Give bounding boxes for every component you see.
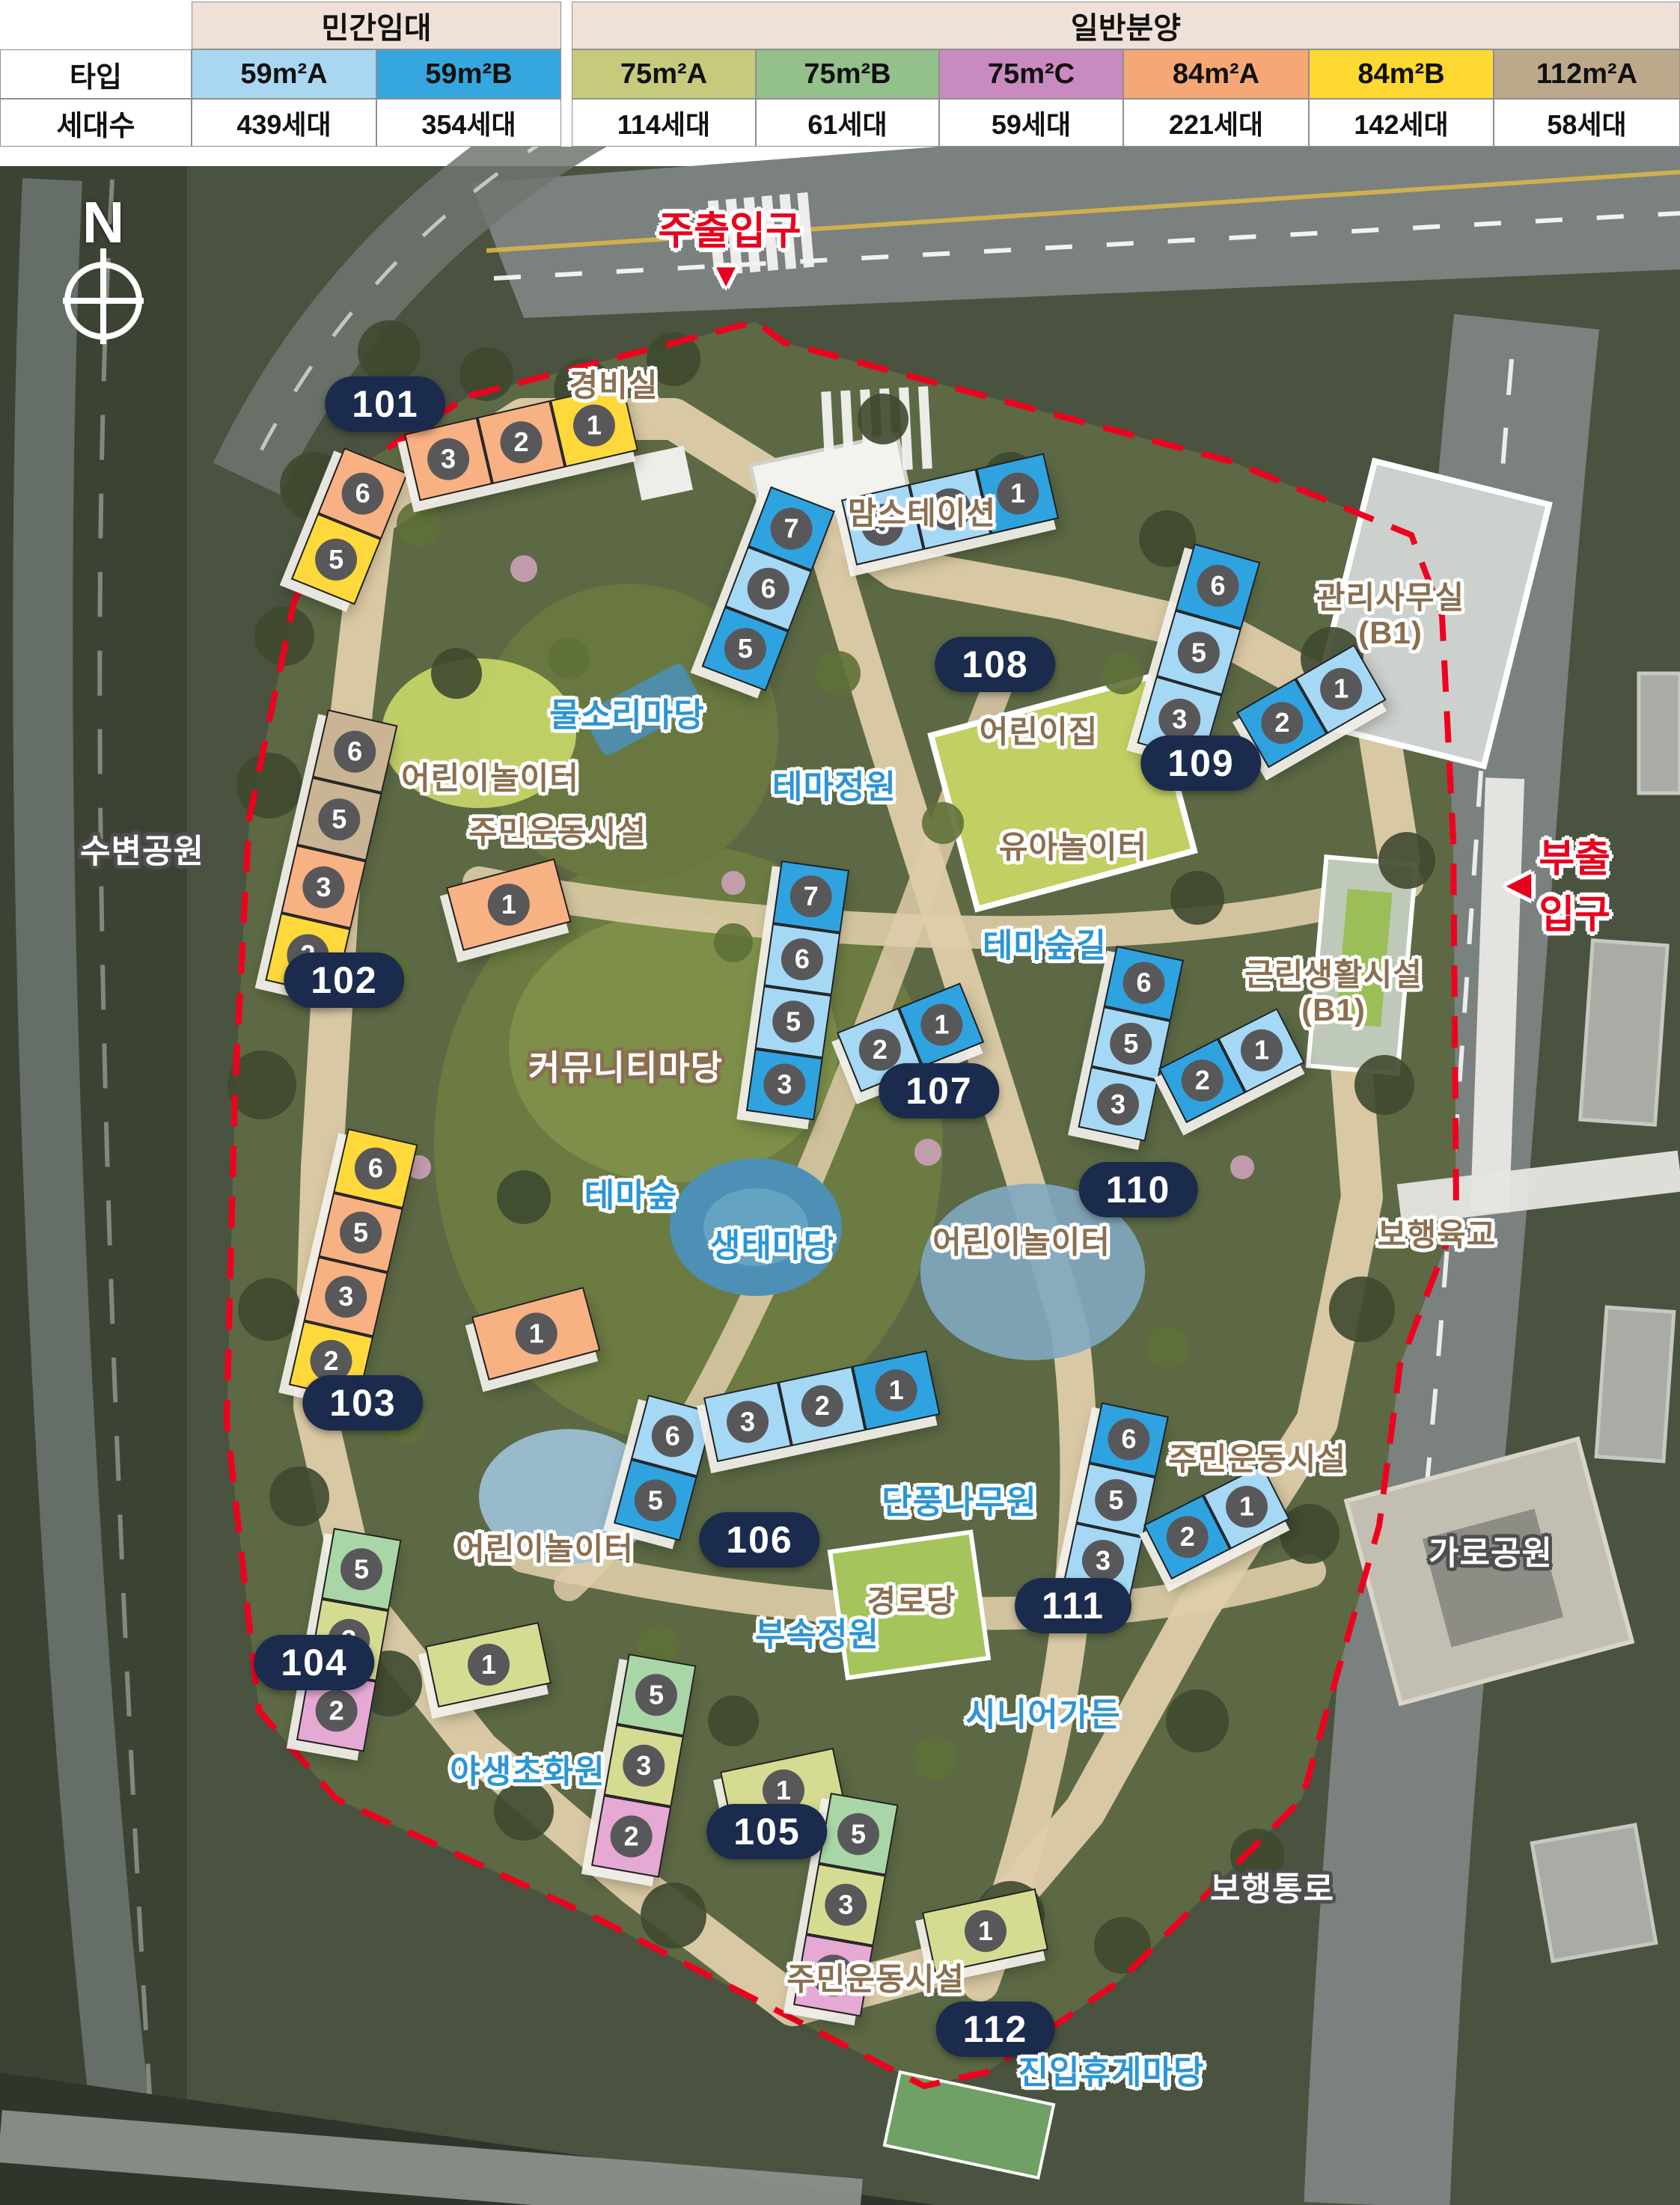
- building-badge-103: 103: [302, 1375, 423, 1431]
- map-label-27-blue: 진입휴게마당: [1018, 2054, 1205, 2091]
- unit-number-circle: 1: [573, 405, 615, 447]
- map-label-23-blue: 시니어가든: [965, 1696, 1120, 1733]
- unit-legend-table: 민간임대일반분양타입59m²A59m²B75m²A75m²B75m²C84m²A…: [0, 1, 1680, 147]
- map-label-2-facility: 관리사무실 (B1): [1316, 580, 1464, 650]
- legend-group-0: 민간임대: [192, 1, 561, 49]
- unit-number-circle: 6: [781, 938, 823, 980]
- unit-number-circle: 6: [1197, 565, 1238, 607]
- entrance-label: 부출입구: [1539, 827, 1622, 939]
- unit-number-circle: 6: [748, 568, 789, 610]
- legend-corner: [0, 1, 192, 49]
- unit-number-circle: 3: [825, 1884, 867, 1926]
- map-label-20-whitegray: 가로공원: [1429, 1535, 1553, 1571]
- legend-count-3: 61세대: [756, 99, 939, 147]
- legend-row-header-type: 타입: [0, 49, 192, 99]
- building-106-part-2: 321: [703, 1351, 941, 1462]
- building-109-part-1: 653: [1137, 543, 1260, 762]
- entrance-0: 주출입구▼: [658, 200, 801, 295]
- building-badge-110: 110: [1079, 1162, 1198, 1217]
- site-plan-page: N 민간임대일반분양타입59m²A59m²B75m²A75m²B75m²C84m…: [0, 0, 1680, 2205]
- legend-count-2: 114세대: [572, 99, 756, 147]
- unit-number-circle: 3: [763, 1063, 805, 1105]
- unit-number-circle: 1: [1241, 1030, 1283, 1071]
- legend-count-1: 354세대: [376, 99, 561, 147]
- legend-count-0: 439세대: [192, 99, 376, 147]
- unit-number-circle: 6: [355, 1148, 397, 1190]
- building-106-unit-2-type-59A: 2: [778, 1366, 866, 1446]
- legend-type-4: 75m²C: [939, 49, 1123, 99]
- building-105-unit-2-type-75C: 2: [591, 1795, 671, 1878]
- unit-number-circle: 2: [1181, 1059, 1223, 1101]
- building-badge-112: 112: [936, 2001, 1055, 2057]
- map-label-17-blue: 단풍나무원: [882, 1484, 1036, 1520]
- unit-number-circle: 3: [623, 1745, 665, 1787]
- legend-count-4: 59세대: [939, 99, 1123, 147]
- legend-type-0: 59m²A: [192, 49, 376, 99]
- building-badge-105: 105: [706, 1804, 827, 1859]
- map-label-10-blue: 테마숲길: [983, 927, 1107, 964]
- compass: N: [58, 196, 148, 346]
- unit-number-circle: 2: [611, 1815, 653, 1857]
- building-110-part-1: 653: [1078, 946, 1184, 1142]
- unit-number-circle: 5: [635, 1674, 677, 1716]
- building-badge-106: 106: [699, 1512, 819, 1568]
- unit-number-circle: 6: [652, 1415, 694, 1457]
- unit-number-circle: 5: [318, 798, 360, 840]
- building-badge-109: 109: [1140, 735, 1261, 791]
- building-103-part-2: 1: [471, 1287, 600, 1380]
- unit-number-circle: 7: [790, 875, 832, 917]
- building-108-part-1: 765: [702, 486, 835, 691]
- unit-number-circle: 5: [1178, 631, 1220, 673]
- unit-number-circle: 2: [801, 1385, 843, 1427]
- legend-type-5: 84m²A: [1123, 49, 1309, 99]
- legend-type-1: 59m²B: [376, 49, 561, 99]
- map-label-12-whitebrown: 커뮤니티마당: [528, 1049, 723, 1088]
- building-112-unit-3-type-75A: 3: [806, 1864, 886, 1947]
- unit-number-circle: 1: [997, 473, 1039, 515]
- unit-number-circle: 1: [876, 1369, 917, 1411]
- unit-number-circle: 6: [1108, 1419, 1149, 1461]
- building-106-unit-1-type-59B: 1: [852, 1351, 941, 1431]
- entrance-arrow-icon: ◀: [1506, 865, 1532, 903]
- unit-number-circle: 6: [342, 472, 384, 514]
- unit-number-circle: 5: [1110, 1023, 1152, 1065]
- unit-number-circle: 6: [334, 730, 376, 772]
- unit-number-circle: 3: [1082, 1540, 1124, 1582]
- building-101-part-1: 65: [291, 447, 408, 605]
- unit-number-circle: 2: [316, 1689, 358, 1731]
- legend-type-3: 75m²B: [756, 49, 939, 99]
- entrance-label: 주출입구: [658, 200, 801, 256]
- unit-number-circle: 3: [1097, 1083, 1139, 1125]
- unit-number-circle: 6: [1122, 962, 1164, 1004]
- unit-number-circle: 3: [1158, 698, 1200, 740]
- unit-number-circle: 1: [1320, 668, 1362, 710]
- building-107-unit-5-type-59A: 5: [755, 985, 832, 1057]
- map-label-1-facility: 맘스테이션: [848, 495, 996, 530]
- unit-number-circle: 5: [724, 628, 766, 670]
- building-112-unit-5-type-75B: 5: [818, 1793, 898, 1876]
- legend-type-7: 112m²A: [1494, 49, 1680, 99]
- unit-number-circle: 5: [340, 1211, 382, 1253]
- map-label-18-facility: 주민운동시설: [1168, 1441, 1346, 1476]
- unit-number-circle: 1: [468, 1644, 510, 1686]
- unit-number-circle: 2: [1261, 702, 1303, 744]
- unit-number-circle: 2: [501, 421, 543, 463]
- unit-number-circle: 1: [488, 884, 530, 926]
- building-102-unit-1-type-84A: 1: [446, 858, 572, 951]
- unit-number-circle: 5: [635, 1479, 676, 1521]
- building-badge-104: 104: [254, 1635, 374, 1690]
- building-111-part-1: 653: [1063, 1402, 1169, 1598]
- unit-number-circle: 3: [325, 1276, 367, 1318]
- map-label-8-facility: 유아놀이터: [999, 829, 1147, 864]
- building-109-part-2: 21: [1236, 644, 1387, 768]
- building-badge-101: 101: [325, 376, 445, 432]
- building-107-unit-6-type-59A: 6: [763, 923, 840, 995]
- building-106-part-1: 65: [614, 1395, 715, 1541]
- map-label-25-facility: 주민운동시설: [786, 1961, 965, 1996]
- map-label-15-facility: 어린이놀이터: [932, 1224, 1111, 1259]
- building-104-unit-1-type-75A: 1: [425, 1622, 552, 1707]
- legend-count-6: 142세대: [1309, 99, 1494, 147]
- map-label-21-facility: 어린이놀이터: [456, 1531, 634, 1566]
- building-badge-108: 108: [935, 637, 1055, 692]
- entrance-1: ◀부출입구: [1506, 827, 1622, 939]
- building-104-part-2: 1: [425, 1622, 552, 1707]
- map-label-26-whitegray: 보행통로: [1210, 1871, 1334, 1907]
- legend-type-6: 84m²B: [1309, 49, 1494, 99]
- building-badge-102: 102: [284, 952, 404, 1008]
- building-105-unit-3-type-75A: 3: [604, 1725, 684, 1808]
- map-label-24-blue: 야생초화원: [450, 1753, 605, 1790]
- map-label-9-whitegray: 수변공원: [80, 833, 204, 869]
- building-badge-107: 107: [879, 1063, 999, 1119]
- building-103-unit-1-type-84A: 1: [471, 1287, 600, 1380]
- map-label-13-blue: 테마숲: [584, 1177, 677, 1214]
- map-label-7-blue: 테마정원: [772, 768, 896, 805]
- map-label-0-facility: 경비실: [569, 367, 659, 403]
- map-label-16-facility: 보행육교: [1378, 1217, 1497, 1252]
- building-107-part-1: 7653: [746, 860, 849, 1121]
- building-111-part-2: 21: [1143, 1464, 1290, 1579]
- legend-type-2: 75m²A: [572, 49, 756, 99]
- map-label-3-facility: 어린이집: [980, 714, 1099, 749]
- legend-row-header-households: 세대수: [0, 99, 192, 147]
- unit-number-circle: 2: [858, 1029, 900, 1071]
- building-105-unit-5-type-75B: 5: [616, 1654, 696, 1737]
- unit-number-circle: 1: [920, 1004, 962, 1046]
- map-label-11-facility: 근린생활시설 (B1): [1244, 957, 1423, 1027]
- building-103-part-1: 6532: [289, 1128, 418, 1401]
- map-label-19-facility: 경로당: [867, 1583, 956, 1618]
- map-overlay: 6532165321653215321532165321765321765321…: [0, 0, 1680, 2205]
- compass-icon: [58, 248, 148, 346]
- legend-count-5: 221세대: [1123, 99, 1309, 147]
- building-102-part-2: 1: [446, 858, 572, 951]
- unit-number-circle: 5: [837, 1813, 879, 1855]
- unit-number-circle: 5: [340, 1548, 382, 1590]
- unit-number-circle: 2: [1166, 1516, 1208, 1558]
- unit-number-circle: 3: [427, 438, 469, 480]
- map-label-6-facility: 주민운동시설: [468, 814, 647, 849]
- building-107-unit-7-type-59B: 7: [772, 860, 849, 932]
- unit-number-circle: 5: [1095, 1479, 1137, 1521]
- building-badge-111: 111: [1015, 1578, 1131, 1633]
- unit-number-circle: 3: [302, 866, 344, 908]
- unit-number-circle: 1: [965, 1910, 1007, 1952]
- unit-number-circle: 5: [772, 1001, 814, 1043]
- unit-number-circle: 5: [315, 538, 357, 580]
- map-label-22-blue: 부속정원: [755, 1616, 879, 1653]
- building-105-part-1: 532: [591, 1654, 697, 1878]
- unit-number-circle: 1: [515, 1312, 557, 1354]
- building-107-unit-3-type-59B: 3: [746, 1048, 823, 1120]
- unit-number-circle: 3: [727, 1401, 769, 1443]
- legend-count-7: 58세대: [1494, 99, 1680, 147]
- legend-group-1: 일반분양: [572, 1, 1680, 49]
- map-label-5-facility: 어린이놀이터: [401, 760, 579, 795]
- entrance-arrow-icon: ▼: [709, 257, 742, 295]
- unit-number-circle: 1: [1226, 1486, 1268, 1528]
- map-label-4-blue: 물소리마당: [549, 697, 704, 733]
- compass-north-label: N: [82, 196, 124, 248]
- building-110-unit-3-type-59A: 3: [1078, 1067, 1158, 1142]
- map-label-14-blue: 생태마당: [710, 1227, 834, 1264]
- unit-number-circle: 7: [771, 508, 813, 550]
- building-104-unit-5-type-75B: 5: [321, 1528, 401, 1611]
- building-106-unit-3-type-59A: 3: [703, 1382, 792, 1462]
